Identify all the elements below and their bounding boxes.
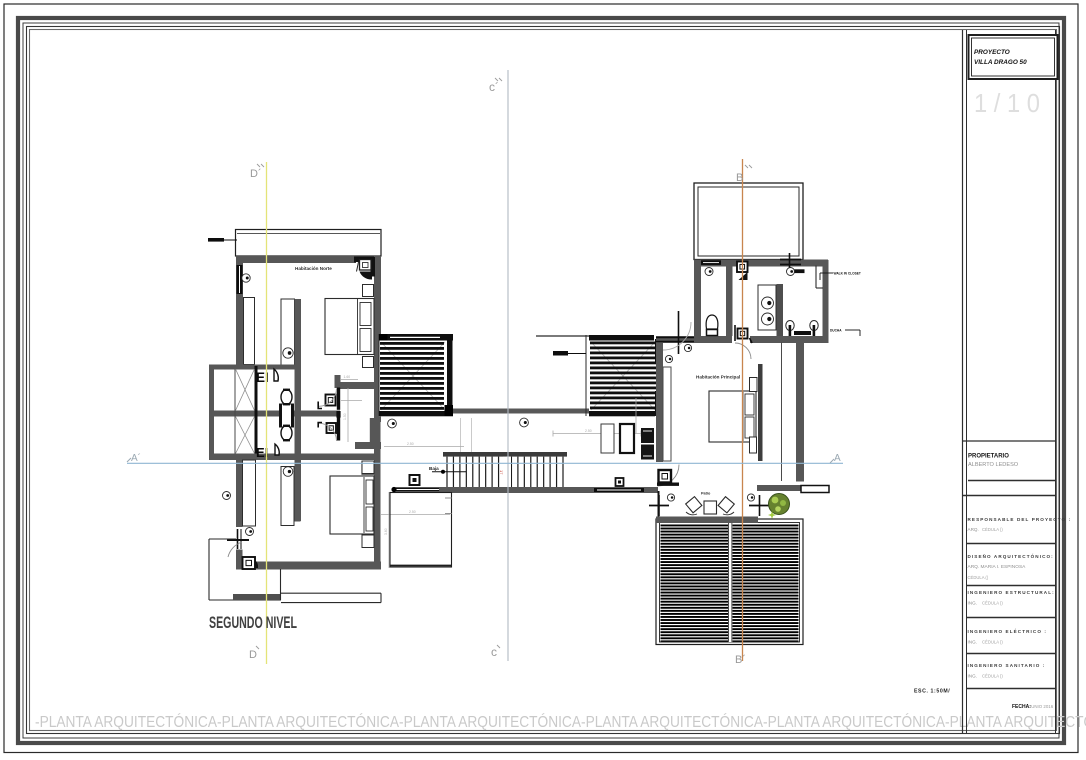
svg-text:CÉDULA (): CÉDULA () [968, 575, 989, 580]
svg-text:ARQ.: ARQ. [968, 527, 979, 532]
svg-text:2.50: 2.50 [407, 442, 414, 446]
svg-text:D: D [249, 649, 257, 661]
svg-text:3.60: 3.60 [384, 528, 388, 535]
svg-text:Baja: Baja [429, 466, 439, 471]
svg-text:1 / 1 0: 1 / 1 0 [974, 88, 1040, 118]
svg-text:c´: c´ [489, 80, 499, 94]
svg-text:DUCHA: DUCHA [830, 329, 842, 333]
svg-text:A: A [834, 453, 841, 464]
svg-text:A´: A´ [131, 452, 141, 464]
svg-text:SEGUNDO NIVEL: SEGUNDO NIVEL [209, 613, 297, 632]
svg-text:PROPIETARIO: PROPIETARIO [968, 454, 1009, 460]
svg-text:JUNIO 2016: JUNIO 2016 [1029, 704, 1054, 709]
svg-text:RESPONSABLE DEL PROYECTO :: RESPONSABLE DEL PROYECTO : [968, 517, 1072, 522]
svg-text:2.50: 2.50 [585, 429, 592, 433]
svg-text:ESC. 1:50M/: ESC. 1:50M/ [914, 689, 950, 695]
svg-text:ING.: ING. [968, 640, 977, 645]
svg-text:17: 17 [499, 470, 504, 475]
svg-text:ARQ. MARIA I. ESPINOSA: ARQ. MARIA I. ESPINOSA [968, 564, 1027, 570]
svg-text:1.60: 1.60 [344, 375, 351, 379]
svg-text:ALBERTO LEDESO: ALBERTO LEDESO [968, 462, 1019, 468]
svg-text:INGENIERO ELÉCTRICO :: INGENIERO ELÉCTRICO : [968, 627, 1048, 634]
svg-text:ING.: ING. [968, 601, 977, 606]
svg-text:Habitación Norte: Habitación Norte [295, 266, 332, 271]
svg-text:-PLANTA ARQUITECTÓNICA-PLANTA: -PLANTA ARQUITECTÓNICA-PLANTA ARQUITECTÓ… [35, 714, 1086, 731]
svg-text:WALK IN CLOSET: WALK IN CLOSET [834, 272, 861, 276]
svg-text:CÉDULA (): CÉDULA () [982, 640, 1003, 645]
svg-text:PROYECTO: PROYECTO [974, 49, 1010, 56]
svg-text:c: c [491, 645, 497, 659]
svg-text:2.50: 2.50 [409, 510, 416, 514]
svg-text:INGENIERO ESTRUCTURAL:: INGENIERO ESTRUCTURAL: [968, 590, 1055, 595]
svg-text:Habitación Principal: Habitación Principal [696, 375, 740, 380]
svg-text:CÉDULA (): CÉDULA () [982, 601, 1003, 606]
svg-text:B´: B´ [735, 654, 746, 666]
svg-text:B: B [736, 172, 743, 184]
svg-text:CÉDULA (): CÉDULA () [982, 674, 1003, 679]
svg-text:Patio: Patio [701, 492, 711, 496]
svg-text:INGENIERO SANITARIO :: INGENIERO SANITARIO : [968, 663, 1046, 668]
svg-text:DISEÑO ARQUITECTÓNICO:: DISEÑO ARQUITECTÓNICO: [968, 552, 1054, 559]
svg-text:1.50: 1.50 [343, 413, 347, 420]
svg-text:D´: D´ [250, 168, 262, 180]
svg-text:ING.: ING. [968, 674, 977, 679]
svg-text:CÉDULA (): CÉDULA () [982, 527, 1003, 532]
svg-text:VILLA DRAGO 50: VILLA DRAGO 50 [974, 59, 1027, 66]
